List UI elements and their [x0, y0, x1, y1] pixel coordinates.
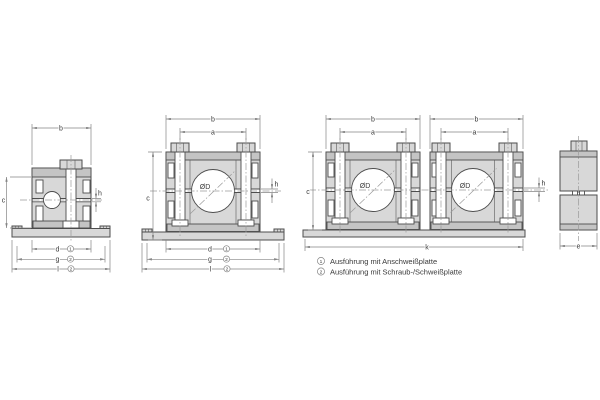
- sv-dim-label-h: h: [98, 191, 102, 198]
- legend-ref-num-2: 2: [320, 270, 323, 276]
- dv-dim-a-b: a: [441, 128, 508, 140]
- pv-hex-bolt: [571, 141, 587, 151]
- fv-dim-label-a: a: [211, 129, 215, 136]
- sv-dim-label-d: d: [56, 246, 60, 253]
- dv-dim-a-a: a: [340, 128, 406, 140]
- front-view-double: ØD ØD b a b a c: [303, 115, 548, 251]
- pv-dim-e: e: [560, 233, 597, 250]
- dv-dim-label-b2: b: [475, 116, 479, 123]
- sv-dim-label-c: c: [2, 198, 6, 205]
- fv-ref-num-d: 1: [225, 247, 228, 253]
- fv-ref-num-g: 2: [225, 257, 228, 263]
- dv-dim-label-h: h: [542, 181, 546, 188]
- dv-dim-k: k: [305, 239, 523, 251]
- legend: 1 Ausführung mit Anschweißplatte 2 Ausfü…: [317, 257, 462, 277]
- sv-dim-label-l: l: [57, 266, 59, 273]
- fv-dim-label-h: h: [275, 182, 279, 189]
- dv-dim-label-k: k: [425, 244, 429, 251]
- dv-mounting-plate: [303, 230, 525, 237]
- dv-dim-label-b: b: [371, 116, 375, 123]
- sv-dim-l: l 2: [12, 240, 110, 273]
- sv-dim-d: d 1: [32, 240, 91, 253]
- dv-dim-label-a2: a: [473, 129, 477, 136]
- fv-dim-label-d: d: [208, 246, 212, 253]
- sv-dim-label-b: b: [59, 125, 63, 132]
- front-view-single: ØD b a c h d 1: [142, 115, 284, 273]
- legend-row-2: 2 Ausführung mit Schraub-/Schweißplatte: [317, 267, 462, 276]
- dv-bore-label-a: ØD: [360, 183, 371, 190]
- sv-dim-c: c: [2, 177, 31, 228]
- legend-text-2: Ausführung mit Schraub-/Schweißplatte: [330, 267, 462, 276]
- sv-clamp-body: [32, 160, 91, 228]
- sv-dim-g: g 2: [17, 246, 105, 264]
- dv-dim-c: c: [306, 152, 322, 230]
- sv-dim-b: b: [32, 124, 91, 165]
- dv-bore-label-b: ØD: [460, 183, 471, 190]
- sv-dim-label-g: g: [56, 257, 60, 264]
- fv-dim-l: l 2: [142, 243, 284, 273]
- legend-text-1: Ausführung mit Anschweißplatte: [330, 257, 437, 266]
- legend-row-1: 1 Ausführung mit Anschweißplatte: [317, 257, 437, 266]
- fv-dim-label-b: b: [211, 116, 215, 123]
- legend-ref-num-1: 1: [320, 259, 323, 265]
- dv-clamp-b: [430, 143, 523, 230]
- fv-dim-label-g: g: [208, 257, 212, 264]
- fv-bore-label: ØD: [200, 184, 211, 191]
- clamp-drawing: b c h d 1 g 2 l: [0, 0, 600, 400]
- sv-ref-num-l: 2: [70, 267, 73, 273]
- fv-dim-g: g 2: [147, 243, 279, 264]
- dv-dim-label-c: c: [306, 189, 310, 196]
- side-profile-view: e: [560, 136, 597, 250]
- fv-ref-num-l: 2: [226, 267, 229, 273]
- drawing-canvas: b c h d 1 g 2 l: [0, 0, 600, 400]
- pv-dim-label-e: e: [577, 243, 581, 250]
- sv-ref-num-d: 1: [69, 247, 72, 253]
- fv-dim-a: a: [180, 128, 246, 140]
- sv-ref-num-g: 2: [69, 257, 72, 263]
- fv-dim-c: c: [146, 152, 162, 240]
- fv-dim-label-l: l: [210, 266, 212, 273]
- dv-dim-label-a: a: [371, 129, 375, 136]
- side-view-single: b c h d 1 g 2 l: [2, 124, 110, 273]
- fv-dim-d: d 1: [166, 240, 260, 253]
- fv-dim-label-c: c: [146, 196, 150, 203]
